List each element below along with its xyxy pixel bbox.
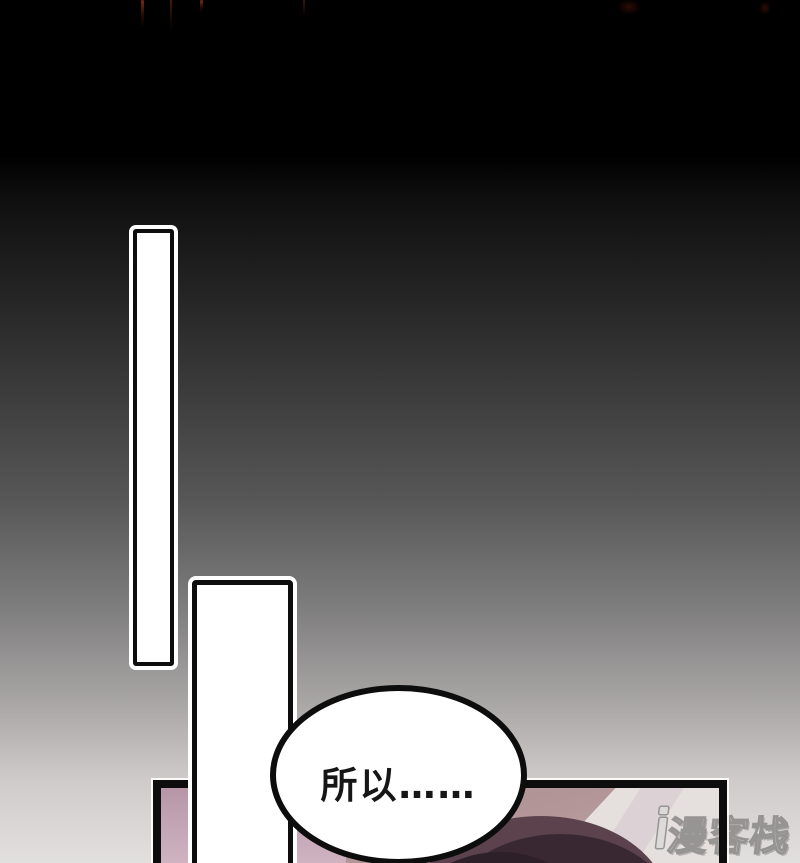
vertical-speech-strip-2 [192,580,293,863]
vertical-speech-strip-1 [133,229,174,666]
speech-bubble-text: 所以…… [321,741,477,809]
ember-streak [170,0,172,34]
speech-bubble: 所以…… [270,685,527,863]
ember-streak [303,0,305,20]
ember-streak [200,0,203,13]
ember-streak [141,0,144,28]
ember-glow [753,0,776,20]
comic-page: 漫客栈 所以…… [0,0,800,863]
ember-glow [612,0,646,18]
